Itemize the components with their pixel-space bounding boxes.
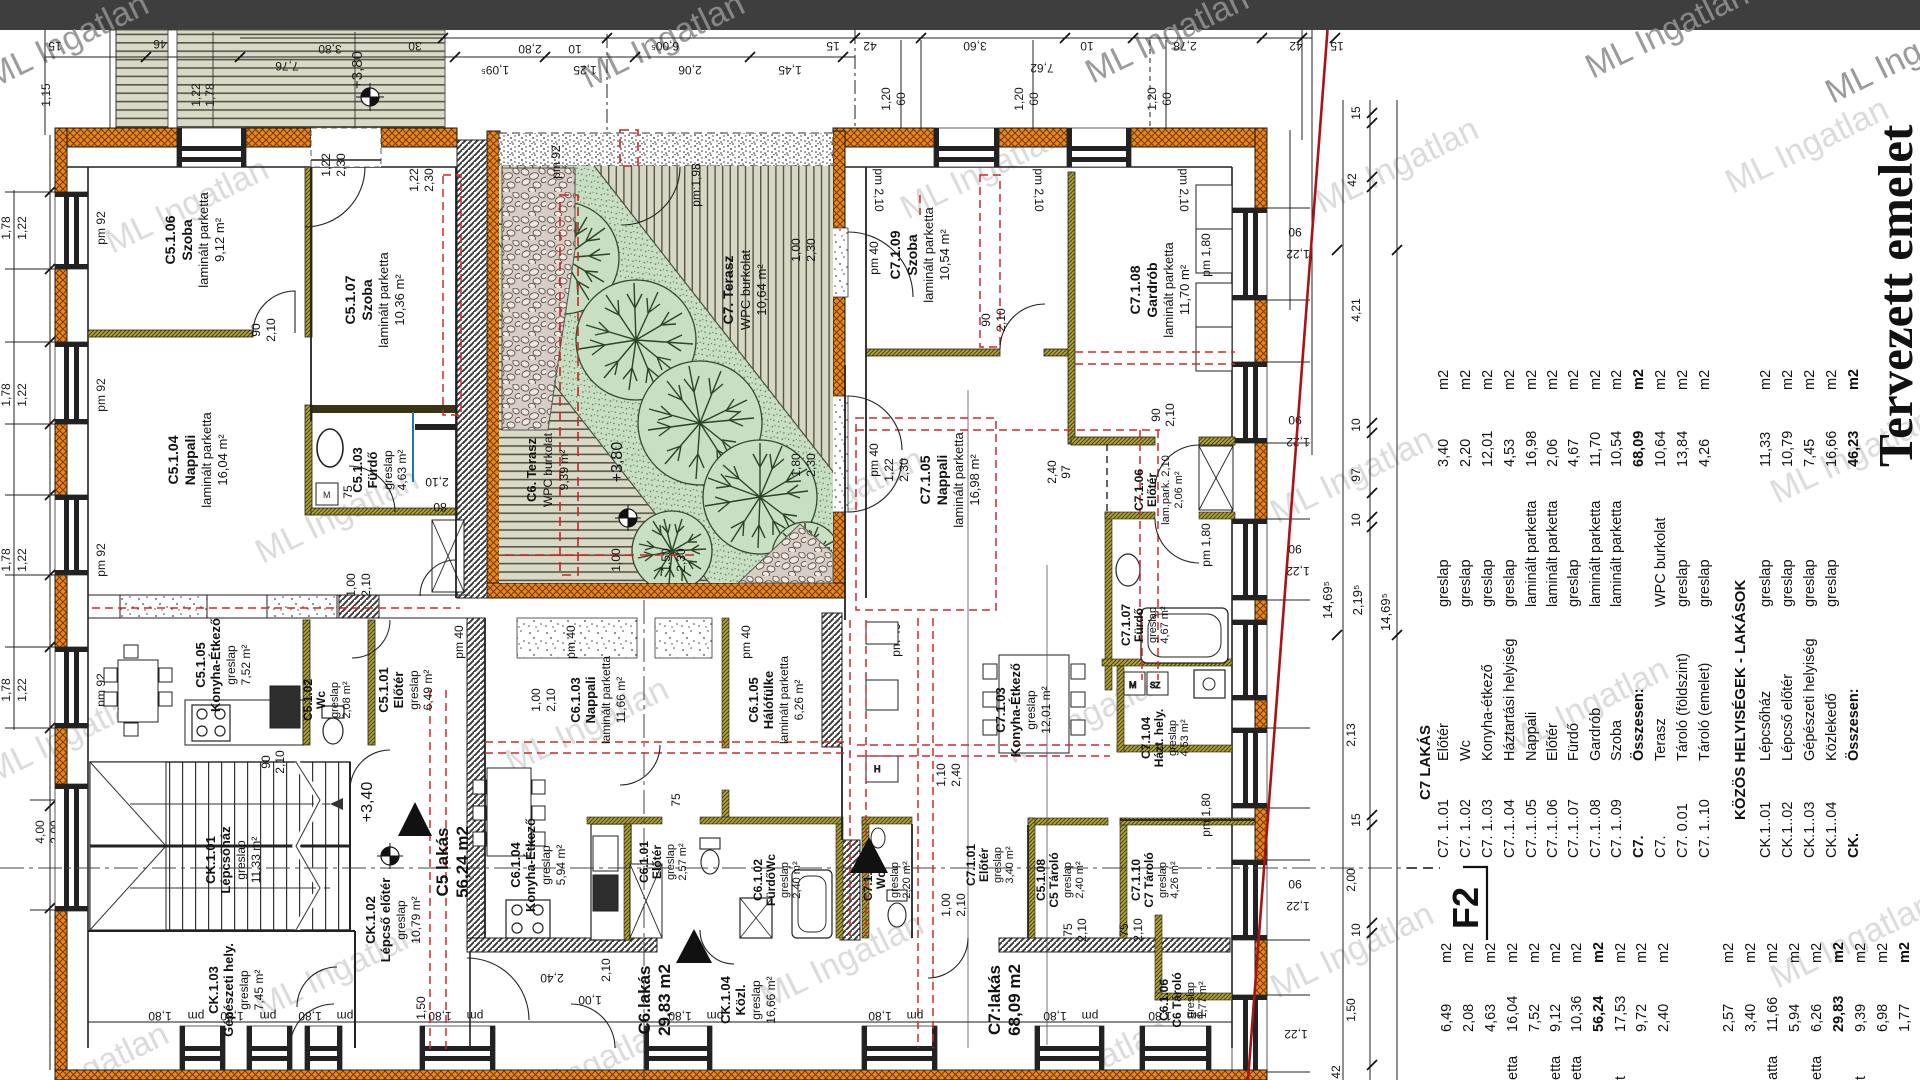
svg-text:greslap: greslap	[1758, 559, 1774, 607]
svg-text:17,53: 17,53	[1613, 996, 1629, 1032]
svg-text:9,39: 9,39	[1853, 1004, 1869, 1032]
svg-text:2,10: 2,10	[359, 573, 373, 597]
svg-text:greslap: greslap	[779, 862, 791, 898]
svg-text:pm: pm	[1187, 1009, 1204, 1023]
svg-text:1,22: 1,22	[1286, 899, 1310, 913]
svg-text:11,33 m²: 11,33 m²	[249, 837, 263, 883]
svg-text:greslap: greslap	[1024, 690, 1038, 730]
svg-text:pm: pm	[337, 1009, 354, 1023]
svg-text:2,40 m²: 2,40 m²	[791, 861, 803, 899]
svg-text:C7.1.08: C7.1.08	[1127, 265, 1143, 314]
svg-text:5,94: 5,94	[1787, 1004, 1803, 1032]
svg-text:WPC burkolat: WPC burkolat	[738, 250, 753, 331]
svg-text:m2: m2	[1656, 943, 1672, 963]
svg-text:m2: m2	[1634, 943, 1650, 963]
svg-text:greslap: greslap	[381, 450, 395, 490]
svg-text:C5.1.05: C5.1.05	[193, 642, 208, 688]
svg-text:1,22: 1,22	[1286, 247, 1310, 261]
svg-text:2,30: 2,30	[897, 458, 911, 482]
svg-text:C7.1.09: C7.1.09	[887, 230, 903, 279]
svg-text:1,00: 1,00	[609, 548, 623, 572]
svg-text:4,67: 4,67	[1566, 439, 1582, 467]
svg-text:60: 60	[894, 92, 908, 106]
svg-text:greslap: greslap	[539, 845, 553, 885]
svg-text:15: 15	[1330, 39, 1344, 53]
svg-text:10,54 m²: 10,54 m²	[937, 229, 952, 281]
svg-text:Házt. hely.: Házt. hely.	[1152, 709, 1166, 767]
svg-text:10,54: 10,54	[1609, 431, 1625, 467]
svg-text:C7.: C7.	[1653, 835, 1669, 858]
svg-text:1,78: 1,78	[0, 216, 13, 240]
svg-text:29,83: 29,83	[1831, 996, 1847, 1032]
svg-text:Wc: Wc	[874, 871, 888, 889]
svg-text:1,50: 1,50	[414, 996, 428, 1020]
svg-text:Előtér: Előtér	[650, 845, 664, 879]
svg-text:1,78: 1,78	[0, 548, 13, 572]
svg-text:KÖZÖS HELYISÉGEK - LAKÁSOK: KÖZÖS HELYISÉGEK - LAKÁSOK	[1732, 580, 1749, 820]
svg-text:16,98 m²: 16,98 m²	[967, 454, 982, 506]
svg-text:6,26: 6,26	[1809, 1004, 1825, 1032]
svg-text:9,12 m²: 9,12 m²	[212, 217, 227, 262]
svg-text:10: 10	[1349, 513, 1363, 527]
svg-text:1,20: 1,20	[879, 87, 893, 111]
svg-text:pm 40: pm 40	[564, 625, 578, 659]
svg-text:m2: m2	[1613, 943, 1629, 963]
svg-text:1,80: 1,80	[148, 1009, 172, 1023]
svg-text:4,21: 4,21	[1349, 298, 1363, 322]
svg-text:13,84: 13,84	[1675, 431, 1691, 467]
svg-text:46: 46	[153, 37, 167, 51]
svg-text:10,79 m²: 10,79 m²	[409, 896, 423, 943]
svg-text:CK.1.01: CK.1.01	[203, 836, 218, 884]
svg-text:2,40: 2,40	[1045, 460, 1059, 484]
svg-text:etta: etta	[1569, 1055, 1585, 1080]
svg-text:Konyha-Étkező: Konyha-Étkező	[208, 618, 223, 712]
svg-text:m2: m2	[1875, 943, 1891, 963]
svg-text:pm 40: pm 40	[867, 241, 881, 275]
svg-text:2,10: 2,10	[264, 318, 278, 342]
svg-text:1,00: 1,00	[939, 893, 953, 917]
svg-text:4,67 m²: 4,67 m²	[1159, 606, 1171, 644]
svg-text:laminált parketta: laminált parketta	[199, 412, 214, 508]
svg-text:greslap: greslap	[237, 970, 251, 1010]
svg-text:Tároló (emelet): Tároló (emelet)	[1697, 663, 1713, 761]
svg-text:m2: m2	[1569, 943, 1585, 963]
svg-text:Előtér: Előtér	[1436, 723, 1452, 761]
svg-text:1,22: 1,22	[882, 458, 896, 482]
svg-text:Nappali: Nappali	[1524, 712, 1540, 761]
svg-text:11,70 m²: 11,70 m²	[1177, 264, 1192, 315]
svg-text:42: 42	[1289, 39, 1303, 53]
svg-text:1,10: 1,10	[934, 763, 948, 787]
svg-text:1,00: 1,00	[578, 993, 602, 1007]
svg-text:m2: m2	[1502, 370, 1518, 390]
svg-text:2,10: 2,10	[273, 750, 287, 774]
svg-text:2,20 m²: 2,20 m²	[901, 861, 913, 899]
svg-text:15: 15	[826, 39, 840, 53]
svg-text:Szoba: Szoba	[904, 234, 920, 275]
svg-text:1,22: 1,22	[1286, 564, 1310, 578]
svg-text:greslap: greslap	[1167, 720, 1179, 756]
svg-text:greslap: greslap	[1780, 559, 1796, 607]
svg-text:6,49 m²: 6,49 m²	[421, 670, 435, 711]
svg-text:2,78: 2,78	[1173, 39, 1197, 53]
svg-text:3,40 m²: 3,40 m²	[1004, 846, 1016, 884]
svg-text:90: 90	[979, 313, 993, 327]
svg-text:16,66: 16,66	[1824, 431, 1840, 467]
svg-text:7,45 m²: 7,45 m²	[252, 970, 266, 1011]
svg-text:90: 90	[1288, 542, 1302, 556]
svg-text:etta: etta	[1505, 1055, 1521, 1080]
svg-text:75: 75	[341, 485, 355, 499]
svg-text:7,52: 7,52	[1527, 1004, 1543, 1032]
svg-text:M: M	[1129, 680, 1137, 690]
svg-text:C5 Tároló: C5 Tároló	[1047, 852, 1061, 907]
svg-text:1,20: 1,20	[1012, 87, 1026, 111]
svg-text:1,50: 1,50	[1344, 998, 1358, 1022]
svg-text:6,98: 6,98	[1875, 1004, 1891, 1032]
svg-text:C7. 1..10: C7. 1..10	[1697, 799, 1713, 858]
svg-text:90: 90	[1149, 408, 1163, 422]
svg-text:m2: m2	[1743, 943, 1759, 963]
svg-text:2,10: 2,10	[994, 308, 1008, 332]
svg-text:m2: m2	[1458, 370, 1474, 390]
svg-text:9,72: 9,72	[1634, 1004, 1650, 1032]
svg-text:WPC burkolat: WPC burkolat	[541, 432, 555, 507]
svg-text:1,78: 1,78	[0, 678, 13, 702]
svg-text:m2: m2	[1809, 943, 1825, 963]
svg-text:m2: m2	[1548, 943, 1564, 963]
svg-text:laminált parketta: laminált parketta	[1545, 500, 1561, 607]
svg-text:Konyha-Étkező: Konyha-Étkező	[523, 818, 538, 912]
svg-text:t: t	[1613, 1076, 1629, 1080]
svg-text:1,80: 1,80	[428, 1009, 452, 1023]
svg-text:C7 LAKÁS: C7 LAKÁS	[1417, 725, 1434, 800]
svg-text:1,22: 1,22	[1284, 1027, 1308, 1041]
svg-text:1,22: 1,22	[15, 216, 29, 240]
svg-text:6,26 m²: 6,26 m²	[792, 680, 806, 721]
svg-text:pm 2,10: pm 2,10	[1032, 168, 1046, 212]
svg-text:2,30: 2,30	[804, 238, 818, 262]
svg-text:lam.park. 2,10: lam.park. 2,10	[1160, 455, 1172, 525]
svg-text:2,10: 2,10	[1075, 918, 1089, 942]
svg-text:1,80: 1,80	[789, 453, 803, 477]
svg-text:1,77: 1,77	[1897, 1004, 1913, 1032]
svg-text:Lépcsőház: Lépcsőház	[1758, 691, 1774, 761]
svg-text:m2: m2	[1758, 370, 1774, 390]
svg-text:laminált parketta: laminált parketta	[376, 252, 391, 348]
svg-text:greslap: greslap	[749, 980, 763, 1020]
svg-text:1,50: 1,50	[659, 548, 673, 572]
svg-text:m2: m2	[1566, 370, 1582, 390]
svg-text:C5.1.01: C5.1.01	[376, 667, 391, 713]
svg-text:Nappali: Nappali	[182, 435, 198, 486]
svg-text:Tervezett emelet: Tervezett emelet	[1868, 124, 1920, 467]
svg-text:greslap: greslap	[1824, 559, 1840, 607]
svg-text:greslap: greslap	[234, 840, 248, 880]
svg-text:pm: pm	[907, 1009, 924, 1023]
svg-text:pm: pm	[1082, 1009, 1099, 1023]
svg-text:2,06: 2,06	[1545, 439, 1561, 467]
svg-text:Fürdő: Fürdő	[365, 452, 380, 489]
svg-text:7,62: 7,62	[1030, 61, 1054, 75]
svg-text:C7..1..04: C7..1..04	[1502, 799, 1518, 858]
svg-text:46,23: 46,23	[1846, 431, 1862, 467]
svg-text:m2: m2	[1787, 943, 1803, 963]
svg-text:68,09 m2: 68,09 m2	[1005, 964, 1024, 1036]
svg-text:Háztartási helyiség: Háztartási helyiség	[1502, 639, 1518, 762]
svg-text:10,36: 10,36	[1569, 996, 1585, 1032]
svg-text:10: 10	[568, 42, 582, 56]
svg-text:m2: m2	[1802, 370, 1818, 390]
svg-text:m2: m2	[1697, 370, 1713, 390]
svg-text:42: 42	[863, 39, 877, 53]
svg-text:t: t	[1853, 1076, 1869, 1080]
svg-text:16,04 m²: 16,04 m²	[215, 434, 230, 486]
svg-text:greslap: greslap	[1147, 607, 1159, 643]
svg-text:m2: m2	[1545, 370, 1561, 390]
svg-text:1,78: 1,78	[0, 383, 13, 407]
svg-text:2,10: 2,10	[954, 893, 968, 917]
svg-text:10,64: 10,64	[1653, 431, 1669, 467]
svg-text:C7..1..07: C7..1..07	[1566, 799, 1582, 858]
svg-text:7,45: 7,45	[1802, 439, 1818, 467]
svg-text:m2: m2	[1436, 370, 1452, 390]
svg-text:Szoba: Szoba	[1609, 719, 1625, 761]
svg-text:C5.1.08: C5.1.08	[1034, 859, 1048, 901]
svg-text:pm 40: pm 40	[739, 625, 753, 659]
svg-text:C7. Terasz: C7. Terasz	[720, 256, 736, 325]
svg-text:11,33: 11,33	[1758, 432, 1774, 467]
svg-text:laminált parketta: laminált parketta	[1588, 500, 1604, 607]
svg-text:C7..1..05: C7..1..05	[1524, 799, 1540, 858]
svg-text:1,78: 1,78	[203, 83, 217, 107]
svg-text:12,01 m²: 12,01 m²	[1039, 686, 1053, 733]
svg-text:2,40 m²: 2,40 m²	[1074, 861, 1086, 899]
svg-text:C5.1.02: C5.1.02	[301, 679, 315, 721]
svg-text:1,80: 1,80	[868, 1009, 892, 1023]
svg-text:10: 10	[1349, 923, 1363, 937]
svg-text:10,64 m²: 10,64 m²	[754, 264, 769, 316]
svg-text:C6. Terasz: C6. Terasz	[524, 437, 539, 502]
svg-text:Lépcső előtér: Lépcső előtér	[378, 878, 393, 963]
svg-text:15: 15	[48, 39, 62, 53]
svg-text:1,00: 1,00	[344, 573, 358, 597]
svg-text:m2: m2	[1721, 943, 1737, 963]
svg-text:+3,80: +3,80	[609, 442, 626, 483]
svg-text:1,80: 1,80	[1043, 1009, 1067, 1023]
svg-text:2,57: 2,57	[1721, 1004, 1737, 1032]
svg-text:C7.1.05: C7.1.05	[917, 455, 933, 504]
svg-text:4,26 m²: 4,26 m²	[1169, 861, 1181, 899]
svg-text:laminált parketta: laminált parketta	[777, 656, 791, 744]
svg-text:7,76: 7,76	[275, 59, 299, 73]
svg-text:2,40: 2,40	[1656, 1004, 1672, 1032]
svg-text:1,22: 1,22	[15, 678, 29, 702]
svg-text:9,12: 9,12	[1548, 1004, 1564, 1032]
svg-text:29,83 m2: 29,83 m2	[655, 964, 674, 1036]
svg-text:15: 15	[1349, 106, 1363, 120]
svg-text:SZ: SZ	[1150, 681, 1160, 690]
svg-text:Nappali: Nappali	[934, 455, 950, 506]
svg-text:m2: m2	[1780, 370, 1796, 390]
svg-text:4,00: 4,00	[33, 820, 47, 844]
svg-text:2,30: 2,30	[334, 153, 348, 177]
svg-text:Szoba: Szoba	[359, 279, 375, 320]
svg-text:C7. 1..09: C7. 1..09	[1609, 799, 1625, 858]
svg-text:m2: m2	[1846, 369, 1862, 390]
svg-text:C7. 1..03: C7. 1..03	[1480, 799, 1496, 858]
svg-text:4,26: 4,26	[1697, 439, 1713, 467]
svg-text:m2: m2	[1609, 370, 1625, 390]
svg-text:1,22: 1,22	[15, 548, 29, 572]
svg-text:2,30: 2,30	[804, 453, 818, 477]
svg-text:1,80: 1,80	[298, 1009, 322, 1023]
svg-text:CK.1.02: CK.1.02	[363, 896, 378, 944]
svg-text:C5.1.07: C5.1.07	[342, 275, 358, 324]
svg-text:90: 90	[1288, 877, 1302, 891]
svg-text:pm:1,98: pm:1,98	[689, 163, 703, 207]
svg-text:laminált parketta: laminált parketta	[951, 432, 966, 528]
svg-text:C5.1.06: C5.1.06	[162, 215, 178, 264]
svg-text:pm 40: pm 40	[452, 625, 466, 659]
svg-text:C7.1.07: C7.1.07	[1119, 604, 1133, 646]
svg-text:4,53: 4,53	[1502, 439, 1518, 467]
svg-text:1,22: 1,22	[319, 153, 333, 177]
svg-text:Wc: Wc	[1458, 740, 1474, 761]
svg-text:CK.1..02: CK.1..02	[1780, 802, 1796, 858]
svg-text:2,10: 2,10	[544, 688, 558, 712]
svg-text:pm 92: pm 92	[94, 378, 108, 412]
svg-text:pm 1,80: pm 1,80	[1199, 233, 1213, 277]
svg-text:Összesen:: Összesen:	[1845, 688, 1862, 761]
svg-text:m2: m2	[1588, 370, 1604, 390]
svg-text:3,40: 3,40	[1436, 439, 1452, 467]
svg-text:Előtér: Előtér	[1545, 723, 1561, 761]
svg-text:Előtér: Előtér	[977, 848, 991, 882]
svg-text:80: 80	[433, 500, 447, 514]
svg-text:C5.1.04: C5.1.04	[165, 435, 181, 484]
svg-text:greslap: greslap	[1502, 559, 1518, 607]
svg-text:Fürdő: Fürdő	[1132, 608, 1146, 642]
svg-text:C7. 0.01: C7. 0.01	[1675, 803, 1691, 858]
svg-text:C7.1.03: C7.1.03	[993, 687, 1008, 733]
svg-text:C6.1.02: C6.1.02	[751, 859, 765, 901]
svg-text:1,00: 1,00	[789, 238, 803, 262]
svg-text:F2: F2	[1445, 887, 1486, 929]
svg-text:14,69⁵: 14,69⁵	[1320, 581, 1335, 619]
svg-text:68,09: 68,09	[1631, 431, 1647, 467]
svg-text:60: 60	[1027, 92, 1041, 106]
svg-text:75: 75	[669, 793, 683, 807]
svg-text:m2: m2	[1480, 370, 1496, 390]
svg-text:CK.: CK.	[1846, 833, 1862, 858]
svg-text:3,80: 3,80	[318, 42, 342, 56]
svg-text:C6.1.03: C6.1.03	[568, 677, 583, 723]
svg-text:pm: pm	[260, 1009, 277, 1023]
svg-text:75: 75	[1061, 923, 1075, 937]
svg-text:C7:lakás: C7:lakás	[985, 965, 1004, 1035]
svg-text:12,01: 12,01	[1480, 431, 1496, 467]
svg-text:4,63 m²: 4,63 m²	[395, 450, 409, 491]
svg-text:C7.1.10: C7.1.10	[1129, 859, 1143, 901]
svg-text:75: 75	[1117, 923, 1131, 937]
svg-text:2,19⁵: 2,19⁵	[1350, 585, 1365, 616]
svg-text:m2: m2	[1461, 943, 1477, 963]
svg-text:10,79: 10,79	[1780, 431, 1796, 467]
svg-text:Gardrób: Gardrób	[1588, 708, 1604, 761]
svg-text:97: 97	[1059, 465, 1073, 479]
svg-text:pm 1,80: pm 1,80	[1199, 793, 1213, 837]
svg-text:2,00: 2,00	[1344, 868, 1358, 892]
svg-text:10: 10	[1349, 418, 1363, 432]
svg-text:greslap: greslap	[394, 900, 408, 940]
svg-text:+3,40: +3,40	[359, 782, 376, 823]
svg-text:4,63: 4,63	[1483, 1004, 1499, 1032]
svg-text:WPC burkolat: WPC burkolat	[1653, 518, 1669, 607]
svg-text:Közl.: Közl.	[733, 984, 748, 1015]
svg-text:etta: etta	[1809, 1055, 1825, 1080]
svg-text:1,20: 1,20	[1145, 87, 1159, 111]
svg-text:pm 40: pm 40	[867, 443, 881, 477]
svg-text:greslap: greslap	[224, 645, 238, 685]
svg-text:2,10: 2,10	[1131, 918, 1145, 942]
svg-text:pm: pm	[707, 1009, 724, 1023]
svg-text:laminált parketta: laminált parketta	[599, 656, 613, 744]
svg-text:30: 30	[408, 39, 422, 53]
svg-text:greslap: greslap	[1802, 559, 1818, 607]
svg-text:Terasz: Terasz	[1653, 718, 1669, 761]
svg-text:greslap: greslap	[1675, 559, 1691, 607]
svg-text:pm 92: pm 92	[549, 145, 563, 179]
svg-text:pm 92: pm 92	[94, 211, 108, 245]
svg-text:7,52 m²: 7,52 m²	[239, 645, 253, 686]
svg-text:2,13: 2,13	[1344, 723, 1358, 747]
svg-text:11,70: 11,70	[1588, 432, 1604, 467]
svg-text:C6.lakás: C6.lakás	[635, 966, 654, 1035]
svg-text:14,69⁵: 14,69⁵	[1378, 593, 1393, 631]
svg-text:1,80: 1,80	[1148, 1009, 1172, 1023]
svg-text:2,08: 2,08	[1461, 1004, 1477, 1032]
svg-text:C5 lakás: C5 lakás	[433, 828, 452, 897]
svg-text:Gardrób: Gardrób	[1144, 262, 1160, 317]
svg-text:greslap: greslap	[1436, 559, 1452, 607]
svg-text:atta: atta	[1765, 1055, 1781, 1080]
svg-text:2,08 m²: 2,08 m²	[341, 681, 353, 719]
svg-text:2,20: 2,20	[1458, 439, 1474, 467]
svg-text:Konyha-étkező: Konyha-étkező	[1480, 664, 1496, 761]
svg-text:greslap: greslap	[1458, 559, 1474, 607]
svg-text:m2: m2	[1675, 370, 1691, 390]
svg-text:C7..1..08: C7..1..08	[1588, 799, 1604, 858]
svg-text:9,39 m²: 9,39 m²	[557, 450, 571, 491]
svg-text:10,36 m²: 10,36 m²	[392, 274, 407, 326]
svg-text:90: 90	[249, 323, 263, 337]
svg-text:C7.1.01: C7.1.01	[964, 844, 978, 886]
svg-text:pm 92: pm 92	[94, 543, 108, 577]
svg-text:C6.1.01: C6.1.01	[637, 841, 651, 883]
svg-text:pm 1,80: pm 1,80	[1199, 523, 1213, 567]
svg-text:11,66 m²: 11,66 m²	[614, 677, 628, 723]
svg-text:2,40: 2,40	[540, 971, 564, 985]
svg-text:1,25: 1,25	[573, 63, 597, 77]
svg-text:m2: m2	[1824, 370, 1840, 390]
svg-text:m2: m2	[1831, 942, 1847, 963]
svg-text:C7 Tároló: C7 Tároló	[1142, 852, 1156, 907]
svg-text:m2: m2	[1853, 943, 1869, 963]
svg-text:m2: m2	[1765, 943, 1781, 963]
svg-text:laminált parketta: laminált parketta	[1161, 242, 1176, 338]
